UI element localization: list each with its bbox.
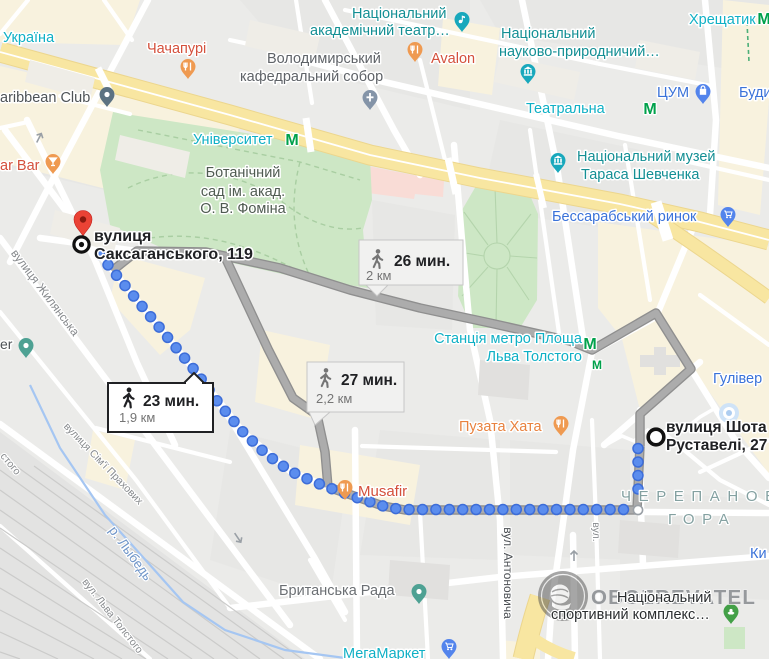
svg-text:26 мин.: 26 мин. (394, 253, 450, 270)
svg-text:aribbean Club: aribbean Club (0, 90, 90, 106)
svg-text:M: M (583, 336, 596, 353)
svg-text:кафедральний собор: кафедральний собор (240, 69, 383, 85)
svg-text:Хрещатик: Хрещатик (689, 12, 756, 28)
svg-text:Національний: Національний (501, 26, 595, 42)
svg-text:вул.: вул. (590, 522, 602, 541)
svg-text:ГОРА: ГОРА (668, 511, 736, 528)
svg-text:сад ім. акад.: сад ім. акад. (201, 184, 285, 200)
svg-text:вул. Антоновича: вул. Антоновича (501, 527, 515, 619)
svg-text:Тараса Шевченка: Тараса Шевченка (581, 167, 700, 183)
svg-text:2,2 км: 2,2 км (316, 391, 352, 406)
svg-text:M: M (757, 11, 769, 28)
svg-text:Національний: Національний (617, 590, 711, 606)
svg-text:Ботанічний: Ботанічний (206, 165, 281, 181)
svg-text:1,9 км: 1,9 км (119, 410, 155, 425)
svg-text:Театральна: Театральна (526, 101, 606, 117)
svg-text:27 мин.: 27 мин. (341, 372, 397, 389)
svg-text:Ки: Ки (750, 546, 767, 562)
svg-text:er: er (0, 336, 13, 352)
svg-text:Володимирський: Володимирський (267, 51, 381, 67)
svg-text:академічний театр…: академічний театр… (310, 23, 450, 39)
svg-text:2 км: 2 км (366, 268, 392, 283)
svg-text:ЦУМ: ЦУМ (657, 85, 689, 101)
svg-text:спортивний комплекс…: спортивний комплекс… (551, 607, 710, 623)
svg-text:Гулівер: Гулівер (713, 371, 762, 387)
svg-text:M: M (643, 101, 656, 118)
svg-text:Бессарабський ринок: Бессарабський ринок (552, 209, 697, 225)
svg-text:Національний музей: Національний музей (577, 149, 715, 165)
svg-text:Станція метро Площа: Станція метро Площа (434, 331, 583, 347)
svg-text:Musafir: Musafir (358, 483, 407, 500)
svg-text:Саксаганського, 119: Саксаганського, 119 (94, 246, 253, 263)
svg-text:вулиця Шота: вулиця Шота (666, 419, 767, 436)
svg-text:Буди: Буди (739, 85, 769, 101)
svg-text:Британська Рада: Британська Рада (279, 583, 396, 599)
svg-text:О. В. Фоміна: О. В. Фоміна (200, 201, 286, 217)
svg-text:Україна: Україна (3, 30, 55, 46)
svg-text:ЧЕРЕПАНОВ.: ЧЕРЕПАНОВ. (621, 488, 769, 505)
svg-text:23 мин.: 23 мин. (143, 393, 199, 410)
svg-text:ar Bar: ar Bar (0, 158, 40, 174)
svg-text:МегаМаркет: МегаМаркет (343, 646, 426, 659)
svg-text:Національний: Національний (352, 6, 446, 22)
svg-text:Університет: Університет (193, 132, 273, 148)
svg-text:Пузата Хата: Пузата Хата (459, 419, 543, 435)
svg-text:Avalon: Avalon (431, 51, 475, 67)
svg-text:Чачапурі: Чачапурі (147, 41, 206, 57)
svg-text:науково-природничий…: науково-природничий… (499, 44, 660, 60)
svg-text:Льва Толстого: Льва Толстого (487, 349, 582, 365)
svg-text:M: M (592, 358, 602, 372)
svg-text:Руставелі, 27: Руставелі, 27 (666, 437, 767, 454)
svg-text:вулиця: вулиця (94, 228, 151, 245)
svg-text:M: M (285, 132, 298, 149)
